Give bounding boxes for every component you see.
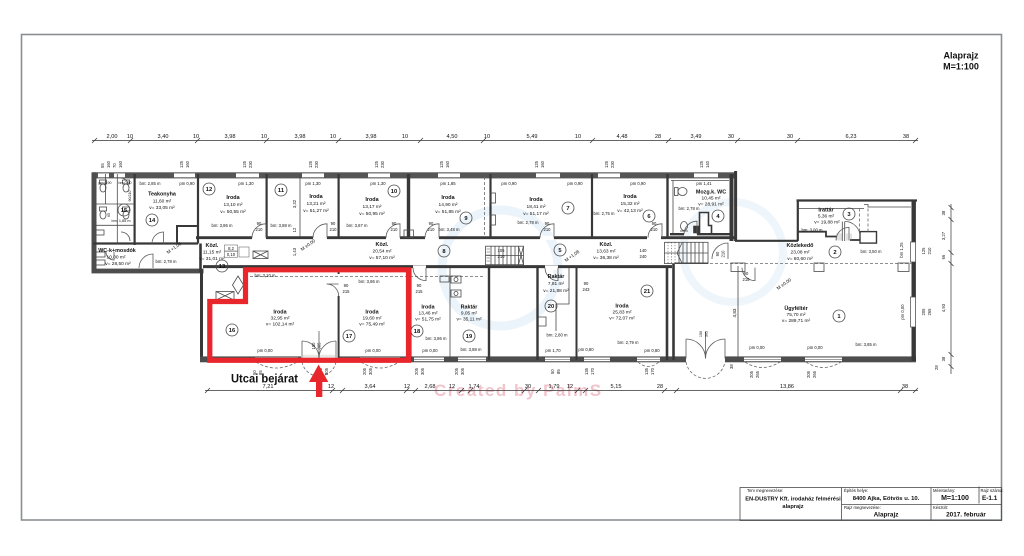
- svg-text:6,23: 6,23: [846, 134, 857, 140]
- svg-text:5,49: 5,49: [527, 134, 538, 140]
- svg-text:8,2: 8,2: [228, 246, 234, 251]
- svg-text:v= 50,55 m²: v= 50,55 m²: [220, 209, 246, 215]
- svg-text:bm: 3,86 m: bm: 3,86 m: [359, 279, 380, 284]
- svg-text:4,83: 4,83: [732, 308, 737, 317]
- svg-text:12: 12: [328, 384, 334, 390]
- svg-text:bm: 3,67 m: bm: 3,67 m: [347, 223, 368, 228]
- svg-text:pm 0,90: pm 0,90: [567, 181, 583, 186]
- svg-text:pm 0,90: pm 0,90: [501, 181, 517, 186]
- svg-text:75,70 m²: 75,70 m²: [787, 312, 806, 318]
- svg-text:12: 12: [292, 227, 297, 232]
- svg-text:bm: 2,79 m: bm: 2,79 m: [618, 340, 639, 345]
- svg-text:38: 38: [902, 384, 908, 390]
- svg-text:19: 19: [466, 334, 473, 340]
- svg-text:125: 125: [374, 160, 379, 168]
- svg-text:10: 10: [261, 134, 267, 140]
- svg-text:v= 60,60 m²: v= 60,60 m²: [787, 256, 813, 262]
- svg-text:18: 18: [414, 329, 421, 335]
- svg-text:210: 210: [428, 227, 436, 232]
- svg-text:Iroda: Iroda: [365, 310, 379, 316]
- svg-text:pm 1,70: pm 1,70: [545, 348, 561, 353]
- svg-text:Mozg.k. WC: Mozg.k. WC: [696, 190, 726, 196]
- svg-text:Teakonyha: Teakonyha: [148, 192, 177, 198]
- svg-text:Iroda: Iroda: [365, 197, 379, 203]
- svg-text:38: 38: [903, 134, 909, 140]
- svg-text:23,08 m²: 23,08 m²: [791, 250, 810, 256]
- svg-text:Közl.: Közl.: [376, 242, 389, 248]
- svg-text:4,48: 4,48: [617, 134, 628, 140]
- svg-text:11: 11: [278, 188, 285, 194]
- svg-text:Terv megnevezése:: Terv megnevezése:: [747, 488, 783, 493]
- svg-text:pm 0,00: pm 0,00: [365, 348, 381, 353]
- svg-text:305: 305: [368, 367, 373, 375]
- svg-text:pm 1,30: pm 1,30: [305, 181, 321, 186]
- svg-text:pm 1,30: pm 1,30: [370, 181, 386, 186]
- svg-text:125: 125: [921, 247, 926, 255]
- svg-text:pm 0,90: pm 0,90: [179, 181, 195, 186]
- svg-text:243: 243: [583, 287, 591, 292]
- svg-text:13,86: 13,86: [780, 384, 794, 390]
- svg-text:210: 210: [927, 247, 932, 255]
- svg-text:3,64: 3,64: [365, 384, 376, 390]
- svg-text:v= 33,05 m²: v= 33,05 m²: [149, 205, 175, 211]
- svg-text:Irattár: Irattár: [818, 208, 834, 214]
- svg-text:2,68: 2,68: [425, 384, 436, 390]
- svg-text:150: 150: [699, 331, 703, 337]
- svg-text:Készült:: Készült:: [933, 505, 948, 510]
- svg-text:90: 90: [429, 221, 434, 226]
- svg-text:pm 1,85: pm 1,85: [440, 181, 456, 186]
- svg-text:215: 215: [416, 289, 424, 294]
- svg-text:v= 51,17 m²: v= 51,17 m²: [523, 211, 549, 217]
- svg-text:bm: 3,86 m: bm: 3,86 m: [212, 223, 233, 228]
- svg-text:17: 17: [346, 334, 352, 340]
- svg-text:205: 205: [749, 370, 754, 378]
- svg-text:215: 215: [743, 277, 751, 282]
- svg-text:pm 0,80: pm 0,80: [644, 348, 660, 353]
- svg-text:Alaprajz: Alaprajz: [874, 512, 899, 519]
- svg-text:13,63 m²: 13,63 m²: [597, 249, 616, 255]
- svg-text:10: 10: [402, 134, 408, 140]
- svg-text:v= 51,75 m²: v= 51,75 m²: [415, 317, 441, 323]
- svg-text:230: 230: [380, 160, 385, 168]
- svg-text:3,49: 3,49: [691, 134, 702, 140]
- svg-text:30: 30: [525, 384, 531, 390]
- svg-text:bm: 3,10 m: bm: 3,10 m: [255, 273, 276, 278]
- svg-text:bm: 2,78 m: bm: 2,78 m: [518, 220, 539, 225]
- svg-text:14: 14: [149, 218, 156, 224]
- svg-text:230: 230: [314, 160, 319, 168]
- svg-text:90: 90: [744, 271, 749, 276]
- svg-text:105: 105: [498, 248, 506, 253]
- svg-text:160: 160: [106, 160, 111, 168]
- svg-text:28: 28: [655, 134, 661, 140]
- svg-text:28: 28: [657, 384, 663, 390]
- svg-text:bm: 3,50 m: bm: 3,50 m: [861, 249, 882, 254]
- svg-text:v= 75,49 m²: v= 75,49 m²: [359, 322, 385, 328]
- svg-text:Iroda: Iroda: [421, 305, 435, 311]
- svg-text:bm: 2,80 m: bm: 2,80 m: [547, 333, 568, 338]
- svg-text:20,54 m²: 20,54 m²: [373, 249, 392, 255]
- svg-text:19,60 m²: 19,60 m²: [363, 316, 382, 322]
- svg-text:7,81 m²: 7,81 m²: [548, 281, 565, 287]
- svg-text:50: 50: [550, 369, 555, 374]
- svg-text:90: 90: [344, 283, 349, 288]
- svg-text:Alaprajz: Alaprajz: [943, 51, 979, 61]
- svg-text:13,10 m²: 13,10 m²: [224, 202, 243, 208]
- svg-text:55: 55: [100, 163, 105, 168]
- svg-text:10,00 m²: 10,00 m²: [107, 255, 126, 261]
- svg-text:12: 12: [206, 187, 212, 193]
- svg-text:7: 7: [566, 206, 569, 212]
- svg-text:90: 90: [545, 221, 550, 226]
- svg-text:Rajz száma:: Rajz száma:: [981, 488, 1004, 493]
- svg-text:v= 51,27 m²: v= 51,27 m²: [303, 208, 329, 214]
- svg-text:70: 70: [112, 163, 117, 168]
- svg-text:bm: 3,00 m: bm: 3,00 m: [802, 228, 823, 233]
- svg-text:bm: 2,75 m: bm: 2,75 m: [594, 211, 615, 216]
- svg-text:170: 170: [650, 367, 655, 375]
- svg-text:8400 Ajka, Eötvös u. 10.: 8400 Ajka, Eötvös u. 10.: [853, 496, 920, 502]
- svg-text:pm 0,80: pm 0,80: [578, 347, 594, 352]
- svg-text:150: 150: [311, 342, 316, 350]
- svg-text:v= 19,88 m²: v= 19,88 m²: [814, 220, 840, 226]
- svg-text:v= 72,07 m²: v= 72,07 m²: [609, 316, 635, 322]
- svg-text:2: 2: [833, 250, 836, 256]
- svg-text:38: 38: [941, 210, 946, 215]
- svg-text:bm 0,90: bm 0,90: [119, 181, 132, 185]
- svg-text:Utcai bejárat: Utcai bejárat: [231, 374, 298, 386]
- svg-text:30: 30: [728, 134, 734, 140]
- svg-text:3,27: 3,27: [941, 231, 946, 240]
- svg-text:170: 170: [590, 367, 595, 375]
- svg-text:12: 12: [404, 384, 410, 390]
- svg-text:pm 0,00: pm 0,00: [749, 345, 765, 350]
- svg-text:Iroda: Iroda: [623, 194, 637, 200]
- svg-text:205: 205: [921, 308, 926, 316]
- svg-text:20: 20: [548, 304, 554, 310]
- svg-text:bm: 3,85 m: bm: 3,85 m: [856, 342, 877, 347]
- svg-text:90: 90: [417, 283, 422, 288]
- svg-text:10: 10: [330, 134, 336, 140]
- svg-text:215: 215: [343, 289, 351, 294]
- svg-text:WC-k+mosdók: WC-k+mosdók: [98, 248, 136, 254]
- svg-text:12: 12: [449, 384, 455, 390]
- svg-text:125: 125: [699, 160, 704, 168]
- svg-text:v= 42,13 m²: v= 42,13 m²: [617, 208, 643, 214]
- svg-text:18,41 m²: 18,41 m²: [527, 204, 546, 210]
- svg-text:13: 13: [219, 264, 226, 270]
- svg-text:3,32: 3,32: [292, 199, 297, 208]
- svg-text:1,43: 1,43: [292, 247, 297, 256]
- svg-text:25,83 m²: 25,83 m²: [613, 310, 632, 316]
- svg-text:Közl.: Közl.: [206, 243, 219, 249]
- svg-text:Építés helye:: Építés helye:: [844, 488, 868, 493]
- svg-text:Raktár: Raktár: [461, 305, 479, 311]
- svg-text:10: 10: [193, 134, 199, 140]
- svg-text:3,40: 3,40: [158, 134, 169, 140]
- svg-text:v= 57,10 m²: v= 57,10 m²: [369, 255, 395, 261]
- svg-text:125: 125: [242, 160, 247, 168]
- svg-text:v= 28,91 m²: v= 28,91 m²: [698, 202, 724, 208]
- svg-text:305: 305: [324, 367, 329, 375]
- svg-text:Közl.: Közl.: [600, 242, 613, 248]
- svg-text:v= 21,88 m²: v= 21,88 m²: [543, 288, 569, 294]
- svg-text:1,74: 1,74: [469, 384, 480, 390]
- svg-text:160: 160: [540, 160, 545, 168]
- svg-text:bm: 2,78 m: bm: 2,78 m: [156, 259, 177, 264]
- svg-text:210: 210: [544, 227, 552, 232]
- svg-text:66: 66: [941, 254, 946, 259]
- svg-text:alaprajz: alaprajz: [782, 504, 803, 510]
- svg-text:13,17 m²: 13,17 m²: [363, 204, 382, 210]
- svg-text:230: 230: [610, 160, 615, 168]
- svg-text:4,50: 4,50: [447, 134, 458, 140]
- svg-text:Iroda: Iroda: [441, 195, 455, 201]
- svg-text:bm: 3,88 m: bm: 3,88 m: [461, 347, 482, 352]
- svg-text:28: 28: [934, 365, 939, 370]
- svg-text:4,93: 4,93: [941, 303, 946, 312]
- svg-text:90/210: 90/210: [128, 191, 132, 202]
- svg-text:160: 160: [118, 160, 123, 168]
- svg-text:0,10: 0,10: [227, 252, 236, 257]
- svg-text:pm 1,41: pm 1,41: [696, 181, 712, 186]
- svg-text:135: 135: [584, 367, 589, 375]
- svg-text:pm 0,90: pm 0,90: [99, 181, 112, 185]
- svg-text:10: 10: [484, 134, 490, 140]
- svg-text:125: 125: [308, 160, 313, 168]
- svg-text:85: 85: [556, 369, 561, 374]
- svg-text:bm: 3,88 m: bm: 3,88 m: [271, 223, 292, 228]
- svg-text:Iroda: Iroda: [226, 195, 240, 201]
- svg-text:M=1:100: M=1:100: [943, 62, 979, 72]
- svg-text:Rajz megnevezése:: Rajz megnevezése:: [844, 505, 881, 510]
- svg-text:v= 36,38 m²: v= 36,38 m²: [593, 255, 619, 261]
- svg-text:265: 265: [927, 308, 932, 316]
- svg-text:140: 140: [640, 248, 648, 253]
- svg-text:240: 240: [640, 254, 648, 259]
- svg-text:30: 30: [787, 134, 793, 140]
- svg-text:210: 210: [256, 227, 264, 232]
- svg-text:65: 65: [107, 213, 111, 217]
- svg-text:90: 90: [584, 281, 589, 286]
- svg-text:160: 160: [185, 160, 190, 168]
- svg-text:38: 38: [941, 356, 946, 361]
- svg-text:Közlekedő: Közlekedő: [787, 243, 815, 249]
- svg-text:13,21 m²: 13,21 m²: [307, 201, 326, 207]
- svg-text:15: 15: [121, 208, 128, 214]
- svg-text:bm: 2,78 m: bm: 2,78 m: [679, 206, 700, 211]
- svg-text:Iroda: Iroda: [529, 197, 543, 203]
- svg-text:205: 205: [806, 370, 811, 378]
- svg-text:265: 265: [812, 370, 817, 378]
- svg-text:3,98: 3,98: [295, 134, 306, 140]
- svg-text:9,05 m²: 9,05 m²: [461, 311, 478, 317]
- svg-text:90: 90: [257, 221, 262, 226]
- svg-text:90: 90: [715, 251, 720, 256]
- svg-text:135: 135: [644, 367, 649, 375]
- svg-text:38: 38: [729, 364, 734, 369]
- svg-text:205: 205: [362, 367, 367, 375]
- svg-text:Ügyféltér: Ügyféltér: [784, 305, 808, 312]
- svg-text:Iroda: Iroda: [309, 194, 323, 200]
- svg-text:210: 210: [498, 254, 506, 259]
- svg-text:Raktár: Raktár: [548, 274, 566, 280]
- svg-text:bm: 1,85 m: bm: 1,85 m: [112, 219, 131, 223]
- svg-text:10: 10: [391, 189, 397, 195]
- svg-text:Iroda: Iroda: [273, 310, 287, 316]
- svg-text:140: 140: [705, 160, 710, 168]
- svg-text:pm 1,30: pm 1,30: [238, 181, 254, 186]
- svg-text:12: 12: [567, 384, 573, 390]
- svg-text:bm: 2,85 m: bm: 2,85 m: [140, 181, 161, 186]
- svg-text:125: 125: [439, 160, 444, 168]
- svg-text:21: 21: [644, 289, 651, 295]
- svg-text:v= 51,85 m²: v= 51,85 m²: [435, 209, 461, 215]
- svg-text:v= 102,14 m²: v= 102,14 m²: [266, 322, 295, 328]
- svg-text:2017. február: 2017. február: [946, 512, 986, 519]
- svg-text:pm 0,00: pm 0,00: [257, 348, 273, 353]
- svg-text:11,60 m²: 11,60 m²: [153, 199, 172, 205]
- svg-text:E-1.1: E-1.1: [982, 495, 998, 502]
- svg-text:bm: 3,48 m: bm: 3,48 m: [439, 227, 460, 232]
- svg-text:v= 35,11 m²: v= 35,11 m²: [456, 317, 482, 323]
- svg-text:pm 0,00: pm 0,00: [807, 345, 823, 350]
- svg-text:5,36 m²: 5,36 m²: [818, 214, 835, 220]
- svg-text:10: 10: [127, 134, 133, 140]
- svg-text:90: 90: [392, 221, 397, 226]
- svg-text:14,90 m²: 14,90 m²: [439, 202, 458, 208]
- svg-text:230: 230: [248, 160, 253, 168]
- svg-text:v= 289,71 m²: v= 289,71 m²: [782, 318, 811, 324]
- svg-text:v= 31,01 m²: v= 31,01 m²: [199, 256, 225, 262]
- svg-text:210: 210: [721, 250, 726, 258]
- svg-text:5,15: 5,15: [611, 384, 622, 390]
- svg-text:11,15 m²: 11,15 m²: [203, 250, 222, 256]
- svg-text:305: 305: [460, 367, 465, 375]
- svg-text:pm 0,00: pm 0,00: [422, 348, 438, 353]
- svg-text:3,98: 3,98: [225, 134, 236, 140]
- svg-text:bm 1,25: bm 1,25: [899, 242, 904, 258]
- svg-text:90: 90: [331, 221, 336, 226]
- svg-text:Méretarány:: Méretarány:: [933, 488, 955, 493]
- svg-text:1,79: 1,79: [549, 384, 560, 390]
- svg-text:305: 305: [705, 331, 709, 337]
- svg-text:210: 210: [330, 227, 338, 232]
- svg-text:125: 125: [534, 160, 539, 168]
- svg-text:32,95 m²: 32,95 m²: [271, 316, 290, 322]
- svg-text:Iroda: Iroda: [615, 304, 629, 310]
- svg-text:2,00: 2,00: [107, 134, 118, 140]
- svg-text:305: 305: [420, 367, 425, 375]
- svg-text:EN-DUSTRY Kft. irodaház felmér: EN-DUSTRY Kft. irodaház felmérési: [745, 497, 841, 503]
- svg-text:pm 0,00: pm 0,00: [900, 304, 905, 320]
- svg-text:210: 210: [391, 227, 399, 232]
- svg-text:15,32 m²: 15,32 m²: [621, 201, 640, 207]
- svg-text:10: 10: [575, 134, 581, 140]
- svg-text:265: 265: [755, 370, 760, 378]
- svg-text:125: 125: [604, 160, 609, 168]
- svg-text:pm 0,90: pm 0,90: [630, 181, 646, 186]
- svg-text:bm: 3,86 m: bm: 3,86 m: [426, 336, 447, 341]
- svg-text:210: 210: [651, 227, 659, 232]
- svg-text:v= 28,50 m²: v= 28,50 m²: [105, 261, 131, 267]
- svg-text:90: 90: [652, 221, 657, 226]
- svg-text:16: 16: [229, 328, 236, 334]
- svg-text:3,98: 3,98: [366, 134, 377, 140]
- svg-text:305: 305: [317, 342, 322, 350]
- svg-text:13,46 m²: 13,46 m²: [419, 311, 438, 317]
- svg-text:205: 205: [454, 367, 459, 375]
- svg-text:125: 125: [179, 160, 184, 168]
- svg-text:M=1:100: M=1:100: [941, 495, 969, 502]
- svg-text:10,45 m²: 10,45 m²: [702, 196, 721, 202]
- svg-text:160: 160: [445, 160, 450, 168]
- svg-text:v= 50,95 m²: v= 50,95 m²: [359, 211, 385, 217]
- svg-text:205: 205: [414, 367, 419, 375]
